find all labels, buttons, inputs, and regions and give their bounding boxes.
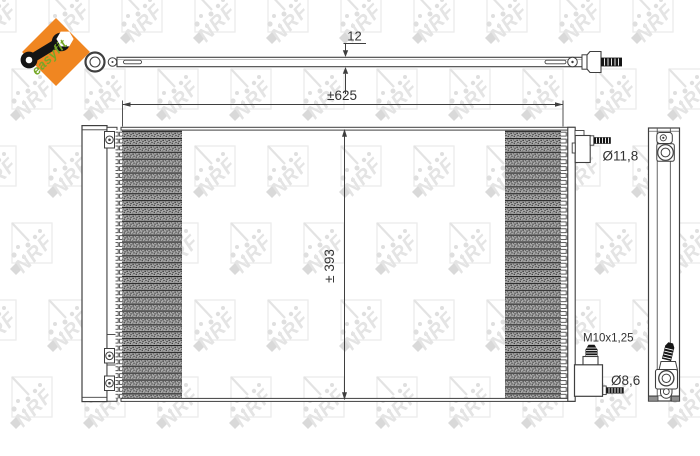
bottom-connection-diameter-label: Ø8,6 (611, 373, 640, 388)
bar-body (117, 57, 582, 66)
bracket-channel (649, 128, 680, 401)
top-side-plate (121, 127, 575, 130)
core-fins-left (122, 130, 182, 399)
thread-spec-label: M10x1,25 (583, 333, 634, 345)
bracket-top-mount (657, 133, 675, 162)
bracket-foot-right (672, 396, 680, 401)
dimension-overall-width: ±625 (123, 88, 564, 127)
condenser-technical-drawing: 12 ±625 (0, 0, 700, 426)
top-connection-block (575, 136, 590, 163)
dimension-overall-height: ± 393 (322, 129, 347, 400)
core-fins-right (505, 130, 561, 399)
easyfit-logo: easyfit (8, 6, 94, 92)
bar-slot-left (124, 60, 142, 64)
right-tube-ends (561, 130, 568, 398)
bottom-connection: M10x1,25 Ø8,6 (575, 333, 641, 397)
bar-union-fitting (587, 52, 601, 73)
left-tube-ends (116, 130, 123, 398)
bar-thickness-label: 12 (347, 29, 361, 44)
top-connection: Ø11,8 (572, 131, 638, 164)
bar-threaded-stud (601, 58, 622, 67)
top-connection-diameter-label: Ø11,8 (603, 149, 639, 164)
overall-height-label: ± 393 (322, 249, 337, 283)
mounting-bracket (649, 128, 680, 401)
top-threaded-stud (594, 137, 611, 144)
bottom-side-plate (121, 398, 575, 401)
overall-width-label: ±625 (327, 88, 357, 103)
bar-slot-right (545, 60, 566, 64)
bottom-vertical-stud (586, 345, 598, 357)
top-seal-bar (86, 52, 623, 73)
bracket-foot-left (649, 396, 659, 401)
bottom-horizontal-stud (606, 387, 624, 393)
bottom-connection-block (575, 365, 603, 397)
receiver-drier (82, 126, 107, 402)
right-header-tank (568, 127, 575, 401)
